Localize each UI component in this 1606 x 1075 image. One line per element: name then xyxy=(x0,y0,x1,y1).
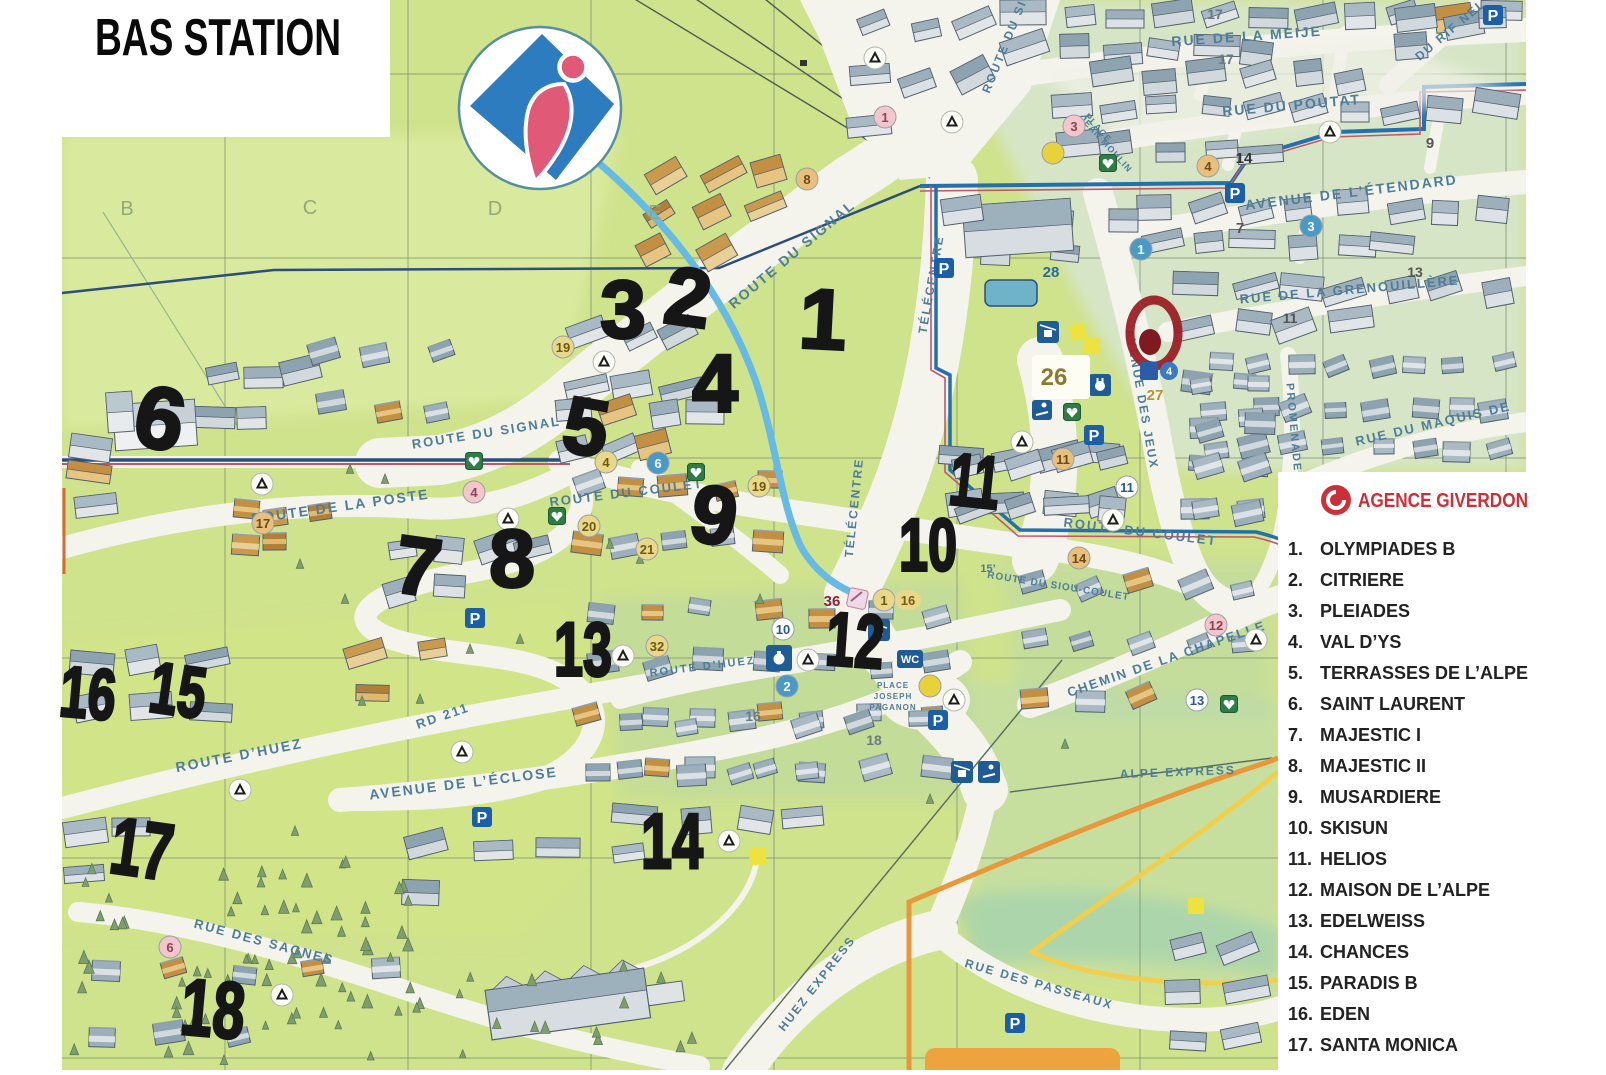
svg-text:17: 17 xyxy=(1218,51,1234,67)
svg-text:MAJESTIC II: MAJESTIC II xyxy=(1320,756,1426,776)
svg-text:16: 16 xyxy=(745,708,761,724)
svg-text:HELIOS: HELIOS xyxy=(1320,849,1387,869)
svg-text:SANTA MONICA: SANTA MONICA xyxy=(1320,1035,1458,1055)
svg-text:18: 18 xyxy=(866,732,882,748)
svg-text:8: 8 xyxy=(489,514,535,605)
svg-text:D: D xyxy=(488,198,502,220)
svg-text:PAGANON: PAGANON xyxy=(869,703,916,712)
svg-text:3: 3 xyxy=(1070,119,1077,134)
svg-text:17: 17 xyxy=(105,801,179,898)
svg-text:3: 3 xyxy=(1307,219,1314,234)
svg-text:EDELWEISS: EDELWEISS xyxy=(1320,911,1425,931)
svg-text:6.: 6. xyxy=(1288,694,1303,714)
svg-text:7.: 7. xyxy=(1288,725,1303,745)
svg-text:P: P xyxy=(470,611,481,628)
svg-text:P: P xyxy=(1089,428,1100,445)
svg-text:3.: 3. xyxy=(1288,601,1303,621)
svg-text:11: 11 xyxy=(1056,452,1070,467)
svg-text:16: 16 xyxy=(901,593,915,608)
svg-text:WC: WC xyxy=(901,654,919,666)
svg-text:5.: 5. xyxy=(1288,663,1303,683)
svg-text:PLACE: PLACE xyxy=(877,681,909,690)
svg-text:6: 6 xyxy=(166,940,173,955)
svg-text:P: P xyxy=(477,810,488,827)
svg-text:EDEN: EDEN xyxy=(1320,1004,1370,1024)
svg-text:SAINT LAURENT: SAINT LAURENT xyxy=(1320,694,1465,714)
svg-text:7: 7 xyxy=(1236,220,1244,237)
svg-text:13: 13 xyxy=(554,608,612,693)
svg-text:AGENCE GIVERDON: AGENCE GIVERDON xyxy=(1358,490,1528,512)
svg-text:JOSEPH: JOSEPH xyxy=(874,692,912,701)
svg-text:16: 16 xyxy=(57,652,120,737)
svg-text:15: 15 xyxy=(145,647,212,734)
svg-text:11.: 11. xyxy=(1288,849,1312,869)
svg-text:13: 13 xyxy=(1407,264,1423,280)
svg-text:21: 21 xyxy=(640,542,654,557)
svg-text:11: 11 xyxy=(1283,310,1298,326)
svg-text:11: 11 xyxy=(946,437,1004,525)
svg-text:17: 17 xyxy=(1207,6,1223,22)
svg-text:14: 14 xyxy=(1072,551,1087,566)
svg-text:14: 14 xyxy=(1236,150,1253,167)
svg-text:18: 18 xyxy=(177,962,249,1056)
svg-text:BAS STATION: BAS STATION xyxy=(95,9,341,67)
svg-text:1: 1 xyxy=(881,110,888,125)
svg-text:9: 9 xyxy=(1426,135,1434,152)
svg-text:B: B xyxy=(120,198,133,220)
svg-text:P: P xyxy=(939,261,950,278)
svg-text:3: 3 xyxy=(600,265,646,356)
svg-text:11: 11 xyxy=(1120,480,1134,495)
svg-text:12.: 12. xyxy=(1288,880,1313,900)
svg-text:P: P xyxy=(933,713,944,730)
svg-text:28: 28 xyxy=(1043,264,1060,281)
svg-text:26: 26 xyxy=(1041,364,1068,391)
svg-text:P: P xyxy=(1488,8,1499,25)
svg-text:P: P xyxy=(1010,1016,1021,1033)
svg-text:9.: 9. xyxy=(1288,787,1303,807)
svg-text:14.: 14. xyxy=(1288,942,1313,962)
svg-text:32: 32 xyxy=(650,639,664,654)
svg-text:2.: 2. xyxy=(1288,570,1303,590)
svg-text:13: 13 xyxy=(1190,693,1204,708)
svg-text:MUSARDIERE: MUSARDIERE xyxy=(1320,787,1441,807)
svg-text:P: P xyxy=(1230,186,1241,203)
svg-text:4.: 4. xyxy=(1288,632,1303,652)
svg-text:15’: 15’ xyxy=(980,563,995,575)
svg-text:PARADIS B: PARADIS B xyxy=(1320,973,1418,993)
svg-text:1: 1 xyxy=(1137,242,1144,257)
svg-text:OLYMPIADES B: OLYMPIADES B xyxy=(1320,539,1455,559)
svg-text:4: 4 xyxy=(602,455,610,470)
svg-text:4: 4 xyxy=(1204,159,1212,174)
svg-text:TERRASSES DE L’ALPE: TERRASSES DE L’ALPE xyxy=(1320,663,1528,683)
svg-text:10.: 10. xyxy=(1288,818,1313,838)
svg-text:SKISUN: SKISUN xyxy=(1320,818,1388,838)
svg-text:10: 10 xyxy=(776,622,790,637)
svg-text:14: 14 xyxy=(641,797,703,885)
svg-text:27: 27 xyxy=(1147,387,1164,404)
svg-text:MAISON DE L’ALPE: MAISON DE L’ALPE xyxy=(1320,880,1490,900)
svg-text:4: 4 xyxy=(692,339,738,430)
svg-text:16.: 16. xyxy=(1288,1004,1313,1024)
svg-text:VAL D’YS: VAL D’YS xyxy=(1320,632,1401,652)
svg-text:12: 12 xyxy=(1209,618,1223,633)
svg-text:8: 8 xyxy=(803,172,810,187)
svg-text:CITRIERE: CITRIERE xyxy=(1320,570,1404,590)
svg-text:PLEIADES: PLEIADES xyxy=(1320,601,1410,621)
svg-text:19: 19 xyxy=(752,479,766,494)
svg-text:4: 4 xyxy=(1166,366,1173,378)
svg-text:17.: 17. xyxy=(1288,1035,1313,1055)
svg-text:6: 6 xyxy=(654,456,661,471)
svg-text:MAJESTIC I: MAJESTIC I xyxy=(1320,725,1421,745)
svg-text:4: 4 xyxy=(470,485,478,500)
svg-text:2: 2 xyxy=(783,679,790,694)
svg-text:15.: 15. xyxy=(1288,973,1313,993)
svg-text:8.: 8. xyxy=(1288,756,1303,776)
svg-text:CHANCES: CHANCES xyxy=(1320,942,1409,962)
svg-text:1: 1 xyxy=(797,271,849,368)
svg-text:C: C xyxy=(303,197,317,219)
svg-text:19: 19 xyxy=(556,340,570,355)
svg-text:13.: 13. xyxy=(1288,911,1313,931)
svg-text:12: 12 xyxy=(823,597,887,686)
svg-text:1.: 1. xyxy=(1288,539,1303,559)
svg-text:17: 17 xyxy=(256,516,270,531)
svg-text:E: E xyxy=(648,202,661,224)
svg-text:20: 20 xyxy=(582,519,596,534)
